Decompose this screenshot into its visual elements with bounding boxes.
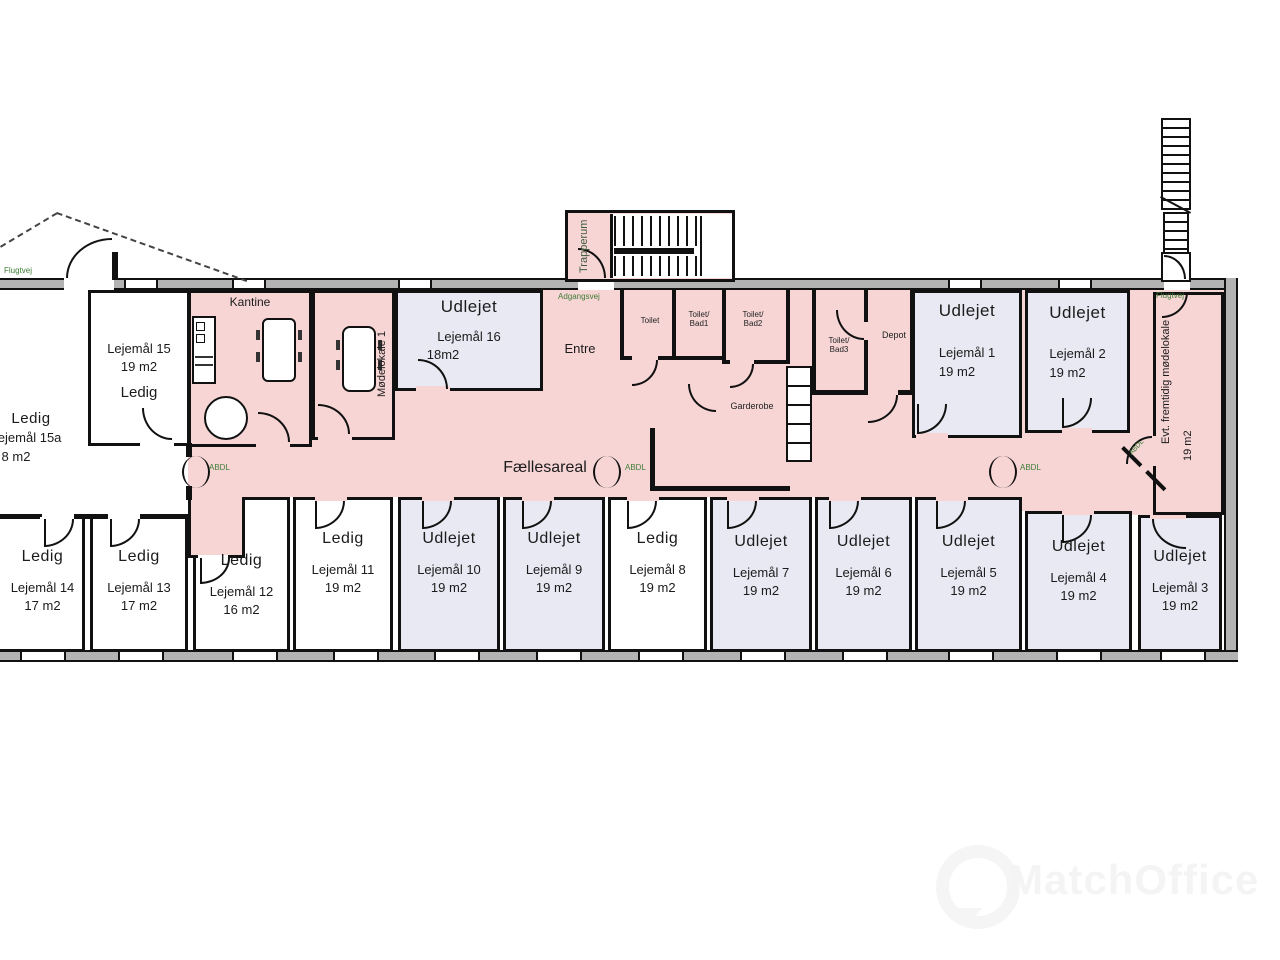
wall-segment bbox=[722, 290, 726, 362]
toilet-bad1-label: Toilet/ Bad1 bbox=[680, 310, 718, 328]
room-5-area: 19 m2 bbox=[950, 583, 986, 598]
round-table bbox=[204, 396, 248, 440]
chair bbox=[336, 340, 340, 350]
window bbox=[536, 650, 582, 662]
room-4-area: 19 m2 bbox=[1060, 588, 1096, 603]
kitchen-counter-line bbox=[195, 364, 213, 366]
room-12-status: Ledig bbox=[221, 552, 263, 570]
garderobe-label: Garderobe bbox=[718, 401, 786, 411]
room-15a-name: Lejemål 15a bbox=[0, 431, 72, 446]
gable-line bbox=[0, 212, 58, 248]
wardrobe-lockers bbox=[786, 366, 812, 462]
room-4-label: Udlejet Lejemål 4 19 m2 bbox=[1025, 538, 1132, 603]
wall-segment bbox=[650, 428, 655, 488]
window bbox=[20, 650, 66, 662]
window bbox=[638, 650, 684, 662]
room-9-area: 19 m2 bbox=[536, 580, 572, 595]
wall-segment bbox=[186, 443, 192, 457]
room-9-name: Lejemål 9 bbox=[526, 562, 582, 577]
room-14-name: Lejemål 14 bbox=[11, 580, 75, 595]
wall-segment bbox=[812, 390, 914, 395]
common-area-room4-strip bbox=[1022, 497, 1132, 511]
flugtvej-left-label: Flugtvej bbox=[4, 266, 32, 275]
room-11-label: Ledig Lejemål 11 19 m2 bbox=[293, 530, 393, 595]
room-3-area: 19 m2 bbox=[1162, 598, 1198, 613]
door-gap bbox=[42, 514, 74, 518]
wall-segment bbox=[650, 486, 790, 491]
room-2-status: Udlejet bbox=[1025, 303, 1130, 323]
room-3-status: Udlejet bbox=[1153, 548, 1206, 566]
chair bbox=[298, 330, 302, 340]
room-10-status: Udlejet bbox=[422, 530, 475, 548]
watermark-brand: MatchOffice bbox=[1008, 856, 1259, 904]
room-13-name: Lejemål 13 bbox=[107, 580, 171, 595]
kitchen-counter-line bbox=[195, 356, 213, 358]
stair-treads bbox=[614, 216, 700, 246]
wall-segment bbox=[112, 252, 118, 280]
corridor-stub bbox=[188, 497, 245, 558]
trapperum-label: Trapperum bbox=[578, 214, 591, 278]
room-10-label: Udlejet Lejemål 10 19 m2 bbox=[398, 530, 500, 595]
door-gap bbox=[916, 433, 948, 439]
room-13-label: Ledig Lejemål 13 17 m2 bbox=[90, 548, 188, 613]
room-6-area: 19 m2 bbox=[845, 583, 881, 598]
double-door-left-leaf bbox=[182, 456, 196, 488]
room-9-label: Udlejet Lejemål 9 19 m2 bbox=[503, 530, 605, 595]
future-room-area: 19 m2 bbox=[1182, 418, 1195, 474]
room-4-status: Udlejet bbox=[1052, 538, 1105, 556]
meeting-table bbox=[342, 326, 376, 392]
room-11-name: Lejemål 11 bbox=[312, 562, 375, 577]
window bbox=[1058, 278, 1092, 290]
window bbox=[434, 650, 480, 662]
stair-divider bbox=[614, 248, 694, 254]
toilet-bad2-label: Toilet/ Bad2 bbox=[734, 310, 772, 328]
room-14-area: 17 m2 bbox=[24, 598, 60, 613]
room-1-status: Udlejet bbox=[912, 301, 1022, 321]
room-1-area: 19 m2 bbox=[902, 365, 1012, 380]
room-10-name: Lejemål 10 bbox=[417, 562, 481, 577]
fire-escape-ladder bbox=[1161, 118, 1191, 210]
room-11-status: Ledig bbox=[322, 530, 364, 548]
room-9-status: Udlejet bbox=[527, 530, 580, 548]
kitchen-sink bbox=[196, 322, 205, 331]
room-8-status: Ledig bbox=[637, 530, 679, 548]
moedelokale-label: Mødelokale 1 bbox=[376, 316, 389, 412]
room-13-status: Ledig bbox=[118, 548, 160, 566]
depot-label: Depot bbox=[870, 330, 918, 340]
window bbox=[1160, 650, 1206, 662]
room-5-label: Udlejet Lejemål 5 19 m2 bbox=[915, 533, 1022, 598]
window bbox=[333, 650, 379, 662]
room-12-area: 16 m2 bbox=[223, 602, 259, 617]
room-8-label: Ledig Lejemål 8 19 m2 bbox=[608, 530, 707, 595]
entre-label: Entre bbox=[552, 342, 608, 357]
wall-segment bbox=[786, 290, 790, 362]
window bbox=[232, 650, 278, 662]
room-14-status: Ledig bbox=[22, 548, 64, 566]
abdl-left-label: ABDL bbox=[209, 463, 230, 472]
room-15-area: 19 m2 bbox=[88, 360, 190, 375]
room-15a-status: Ledig bbox=[0, 410, 62, 427]
room-15a-area: 8 m2 bbox=[0, 450, 40, 465]
door-gap bbox=[140, 440, 174, 446]
flugtvej-right-label: Flugtvej bbox=[1156, 291, 1184, 300]
abdl-right-label: ABDL bbox=[1020, 463, 1041, 472]
door-gap bbox=[108, 514, 140, 518]
chair bbox=[336, 360, 340, 370]
room-8-name: Lejemål 8 bbox=[629, 562, 685, 577]
toilet-label: Toilet bbox=[630, 316, 670, 325]
wall-segment bbox=[864, 340, 868, 394]
room-6-status: Udlejet bbox=[837, 533, 890, 551]
room-5-name: Lejemål 5 bbox=[940, 565, 996, 580]
window bbox=[398, 278, 432, 290]
wall-segment bbox=[812, 290, 816, 394]
toilet-bad3-label: Toilet/ Bad3 bbox=[820, 336, 858, 354]
window bbox=[1056, 650, 1102, 662]
wall-segment bbox=[620, 290, 624, 358]
room-16-name: Lejemål 16 bbox=[395, 330, 543, 345]
wall-segment bbox=[74, 514, 108, 519]
window bbox=[842, 650, 888, 662]
room-7-area: 19 m2 bbox=[743, 583, 779, 598]
room-16-area: 18m2 bbox=[395, 348, 491, 363]
stair-landing bbox=[700, 216, 732, 276]
adgangsvej-label: Adgangsvej bbox=[558, 292, 600, 301]
chair bbox=[256, 330, 260, 340]
room-3-name: Lejemål 3 bbox=[1152, 580, 1208, 595]
room-10-area: 19 m2 bbox=[431, 580, 467, 595]
door-arc bbox=[66, 238, 112, 278]
kantine-label: Kantine bbox=[214, 296, 286, 310]
door-gap bbox=[64, 278, 114, 290]
canteen-table bbox=[262, 318, 296, 382]
exterior-wall-bottom bbox=[0, 650, 1238, 662]
wall-segment bbox=[0, 514, 40, 519]
fire-escape-treads bbox=[1163, 212, 1189, 252]
room-13-area: 17 m2 bbox=[121, 598, 157, 613]
room-4-name: Lejemål 4 bbox=[1050, 570, 1106, 585]
exterior-wall-right bbox=[1224, 278, 1238, 662]
room-6-name: Lejemål 6 bbox=[835, 565, 891, 580]
room-15-name: Lejemål 15 bbox=[88, 342, 190, 357]
watermark-logo-pin-tail bbox=[952, 908, 982, 926]
room-7-label: Udlejet Lejemål 7 19 m2 bbox=[710, 533, 812, 598]
door-gap bbox=[1153, 436, 1157, 466]
room-6-label: Udlejet Lejemål 6 19 m2 bbox=[815, 533, 912, 598]
room-7-name: Lejemål 7 bbox=[733, 565, 789, 580]
window bbox=[948, 650, 994, 662]
room-12-label: Ledig Lejemål 12 16 m2 bbox=[193, 552, 290, 617]
room-14-label: Ledig Lejemål 14 17 m2 bbox=[0, 548, 85, 613]
wall-segment bbox=[140, 514, 188, 519]
room-7-status: Udlejet bbox=[734, 533, 787, 551]
room-5-status: Udlejet bbox=[942, 533, 995, 551]
door-gap bbox=[1062, 428, 1092, 434]
chair bbox=[256, 352, 260, 362]
room-11-area: 19 m2 bbox=[325, 580, 361, 595]
room-15-status: Ledig bbox=[88, 384, 190, 401]
window bbox=[118, 650, 164, 662]
kitchen-sink bbox=[196, 334, 205, 343]
window bbox=[232, 278, 266, 290]
wall-segment bbox=[672, 290, 676, 358]
room-12-name: Lejemål 12 bbox=[210, 584, 274, 599]
floor-plan: Kantine Fællesareal Entre Trapperum Møde… bbox=[0, 0, 1280, 960]
faellesareal-label: Fællesareal bbox=[488, 459, 602, 477]
room-1-name: Lejemål 1 bbox=[912, 346, 1022, 361]
window bbox=[740, 650, 786, 662]
stair-treads bbox=[614, 256, 700, 276]
future-room-label: Evt. fremtidig mødelokale bbox=[1160, 296, 1173, 468]
window bbox=[124, 278, 158, 290]
door-gap bbox=[256, 442, 290, 448]
room-2-name: Lejemål 2 bbox=[1025, 347, 1130, 362]
door-gap bbox=[318, 434, 352, 441]
room-8-area: 19 m2 bbox=[639, 580, 675, 595]
room-3-label: Udlejet Lejemål 3 19 m2 bbox=[1138, 548, 1222, 613]
room-16-status: Udlejet bbox=[395, 297, 543, 317]
room-2-area: 19 m2 bbox=[1015, 366, 1120, 381]
abdl-center-label: ABDL bbox=[625, 463, 646, 472]
wall-segment bbox=[186, 486, 192, 500]
chair bbox=[298, 352, 302, 362]
window bbox=[948, 278, 982, 290]
wall-segment bbox=[864, 290, 868, 322]
